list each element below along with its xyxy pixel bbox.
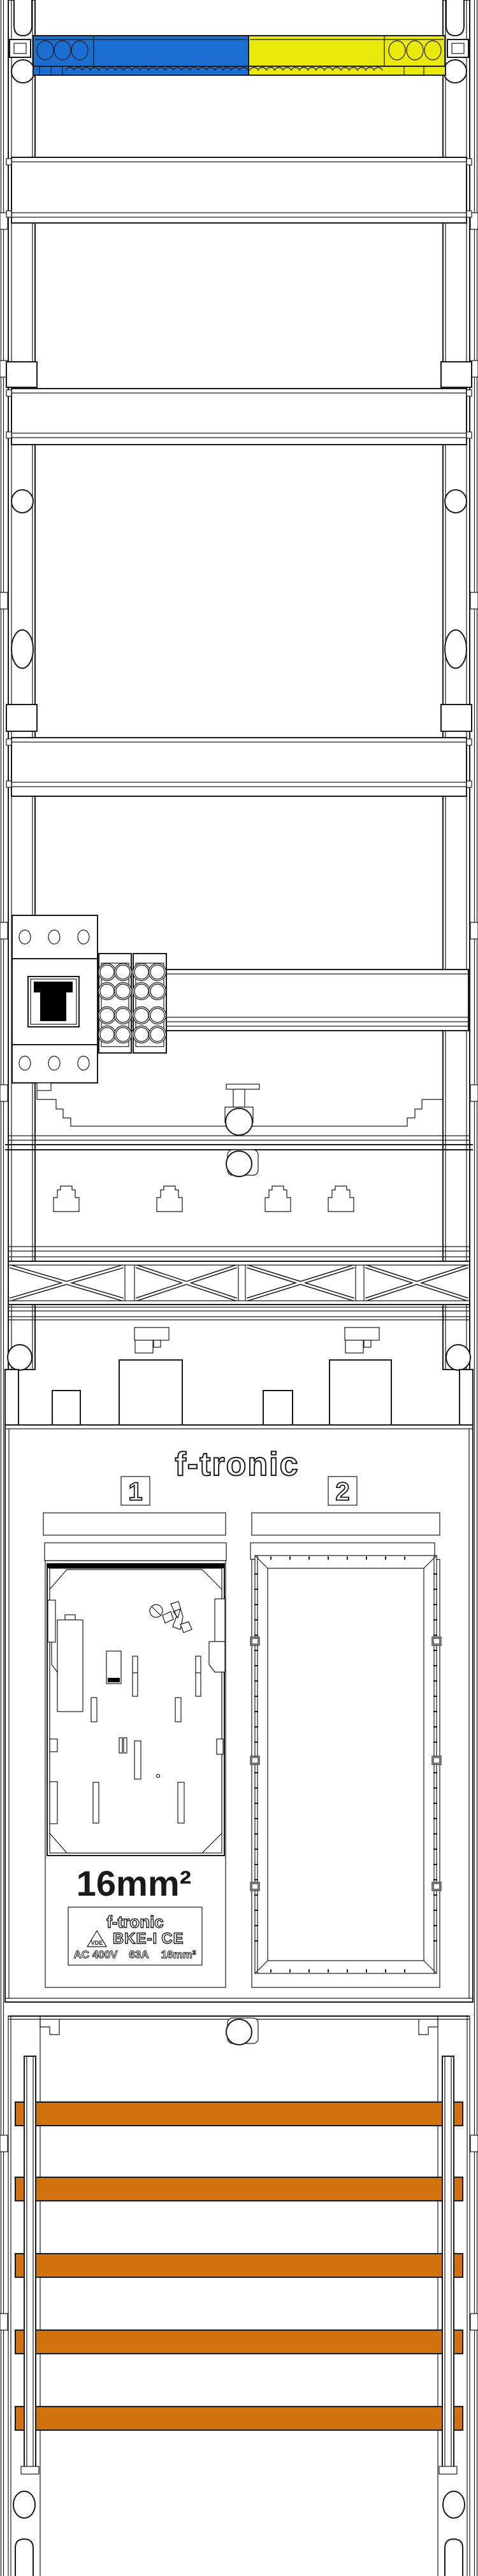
distribution-terminal-block — [133, 954, 167, 1053]
mounting-hole — [11, 490, 33, 513]
meter-cabinet-drawing: f-tronic 1 2 — [0, 0, 478, 2576]
knockout-section — [8, 1150, 470, 1257]
lattice-band — [8, 1261, 470, 1320]
service-connection-device — [12, 915, 98, 1091]
rating-voltage: AC 400V — [74, 1949, 119, 1961]
cable-bracket — [225, 1084, 259, 1135]
device-rail-top — [6, 157, 472, 223]
busbar-section — [8, 2016, 470, 2576]
field-1-number: 1 — [128, 1478, 142, 1506]
wire-size-label: 16mm² — [76, 1863, 192, 1903]
ce-mark: CE — [161, 1930, 184, 1947]
busbar-5 — [15, 2407, 463, 2430]
panel-clip-row — [8, 1327, 470, 1370]
mounting-hole — [444, 60, 467, 83]
rating-current: 63A — [129, 1949, 148, 1961]
retaining-clip — [134, 1327, 169, 1353]
cable-grommet-housing — [226, 2018, 258, 2045]
pe-terminal-block-yellow — [249, 36, 445, 75]
distribution-terminal-block — [99, 954, 132, 1053]
side-mounting-hole — [8, 1345, 32, 1370]
busbar-3 — [15, 2254, 463, 2277]
retaining-clip — [345, 1327, 379, 1353]
edge-step — [419, 2019, 438, 2035]
meter-panel: f-tronic 1 2 — [5, 1425, 473, 2002]
field-2-number-badge: 2 — [328, 1477, 357, 1506]
field-1-number-badge: 1 — [121, 1477, 150, 1506]
mounting-fork-slot — [445, 2539, 463, 2576]
field-2-label-plate — [252, 1513, 440, 1535]
mounting-slot — [445, 630, 467, 668]
brand-logo: f-tronic — [175, 1446, 299, 1483]
busbar-carrier-rail — [439, 2056, 457, 2474]
neutral-terminal-block-blue — [33, 36, 249, 75]
field-2-meter-window — [250, 1543, 441, 1987]
busbar-2 — [15, 2177, 463, 2201]
mounting-slot — [11, 630, 33, 668]
top-terminal-strip — [33, 36, 445, 75]
rating-plate-model: BKE-I — [113, 1930, 157, 1947]
mounting-fork-slot — [15, 2539, 33, 2576]
cable-grommet — [226, 1108, 252, 1135]
rating-plate-brand: f-tronic — [106, 1912, 164, 1931]
field-1-bke-adapter: 16mm² f-tronic VDE BKE-I CE AC 400V 63A … — [45, 1543, 226, 1987]
mounting-fork-slot — [14, 0, 32, 36]
side-mounting-hole — [446, 1345, 470, 1370]
field-1-label-plate — [43, 1513, 226, 1535]
busbar-1 — [15, 2102, 463, 2126]
device-rail-third — [6, 738, 472, 796]
mounting-hole — [445, 490, 467, 513]
field-2-number: 2 — [335, 1478, 349, 1506]
mounting-hole — [443, 2491, 465, 2518]
edge-step — [40, 2019, 59, 2035]
panel-standoff-tabs — [5, 1360, 473, 1427]
cable-knockouts — [54, 1186, 354, 1212]
vde-mark-text: VDE — [91, 1940, 103, 1946]
middle-assembly — [5, 915, 473, 1150]
rating-plate: f-tronic VDE BKE-I CE AC 400V 63A 16mm² — [68, 1907, 202, 1965]
mounting-fork-slot — [446, 0, 464, 36]
mounting-hole — [13, 2491, 35, 2518]
busbar-4 — [15, 2330, 463, 2354]
mounting-hole — [11, 60, 34, 83]
cable-grommet-housing — [226, 1150, 258, 1177]
device-rail-second — [6, 389, 472, 445]
rating-cross-section: 16mm² — [161, 1949, 196, 1961]
busbars — [15, 2102, 463, 2430]
busbar-carrier-rail — [21, 2056, 39, 2474]
